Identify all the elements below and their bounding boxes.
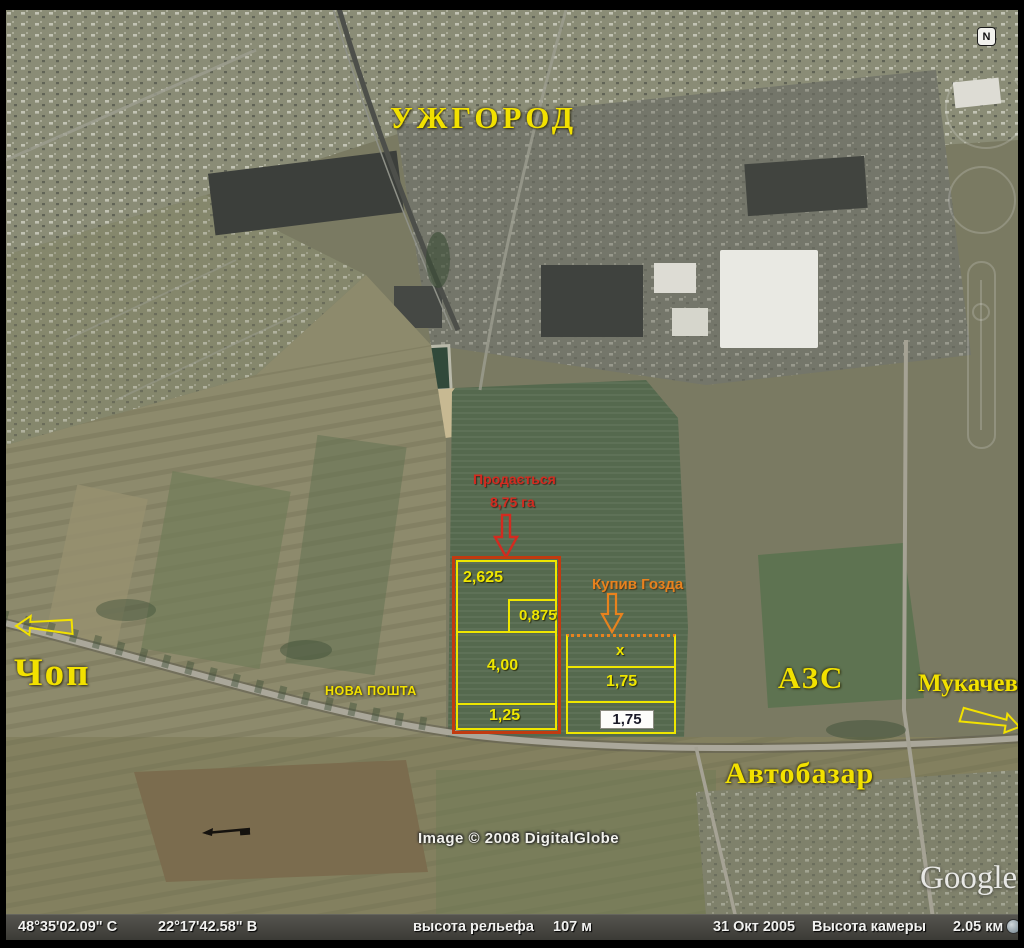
relief-elevation-value: 107 м [553,919,592,935]
parcel-area-400: 4,00 [487,657,518,675]
parcel-area-0875: 0,875 [519,607,557,624]
status-bar: 48°35'02.09" С 22°17'42.58" В высота рел… [6,914,1018,940]
parcel-bought: x 1,75 1,75 [566,634,676,734]
city-label-mukachevo: Мукачево [918,670,1018,698]
sale-annotation-line1: Продається [473,471,556,487]
camera-altitude-value: 2.05 км [953,919,1003,935]
parcel-subplot-0875: 0,875 [508,599,557,633]
imagery-date: 31 Окт 2005 [713,919,795,935]
imagery-copyright: Image © 2008 DigitalGlobe [418,830,619,847]
parcel-area-125: 1,25 [489,707,520,725]
parcel-area-175: 1,75 [606,673,637,691]
globe-icon [1006,919,1018,934]
poi-label-nova-poshta: НОВА ПОШТА [325,684,417,698]
earth-navigation-controls[interactable] [938,80,1018,480]
sale-annotation-area: 8,75 га [490,494,535,510]
city-label-chop: Чоп [14,650,91,695]
parcel-for-sale: 2,625 0,875 4,00 1,25 [452,556,561,734]
poi-label-azs: АЗС [778,660,844,696]
relief-elevation-label: высота рельефа [413,919,534,935]
camera-altitude-label: Высота камеры [812,919,926,935]
sketch-arrow-icon [200,824,254,840]
look-joystick [946,80,1018,148]
google-watermark: Google [920,860,1017,897]
move-joystick [949,167,1015,233]
buyer-annotation: Купив Гозда [592,576,683,593]
city-label-uzhgorod: УЖГОРОД [390,100,577,136]
parcel-area-175-boxed: 1,75 [600,710,654,729]
buyer-down-arrow-icon [600,592,624,634]
latitude-readout: 48°35'02.09" С [18,919,117,935]
parcel-area-x: x [616,642,624,659]
sale-down-arrow-icon [493,513,519,559]
parcel-area-2625: 2,625 [463,569,503,587]
poi-label-avtobazar: Автобазар [725,757,874,791]
satellite-map-viewport[interactable]: N УЖГОРОД Чоп Мукачево АЗС Автобазар НОВ… [6,10,1018,940]
north-compass-button[interactable]: N [977,27,996,46]
longitude-readout: 22°17'42.58" В [158,919,257,935]
chop-direction-arrow-icon [13,610,77,644]
